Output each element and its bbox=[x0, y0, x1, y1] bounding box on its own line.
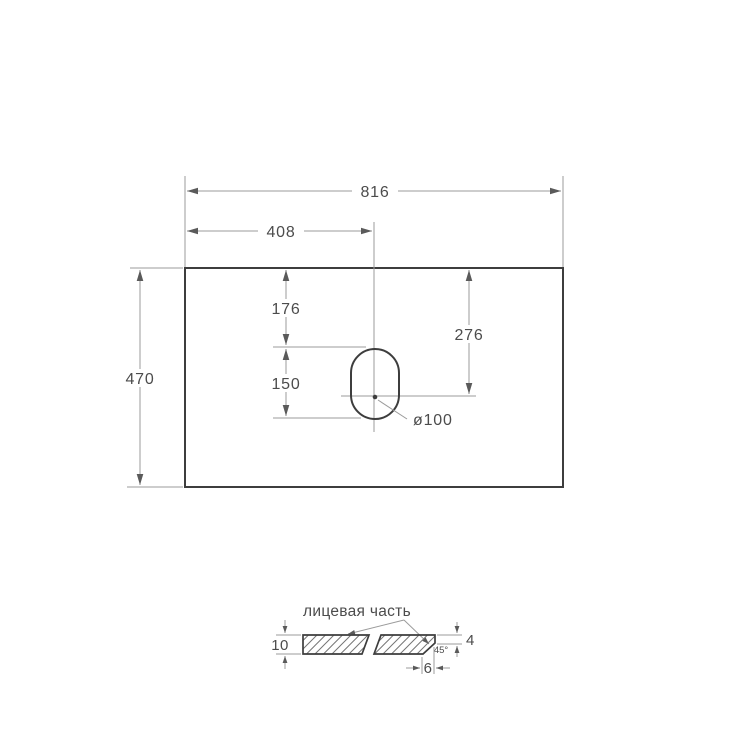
dim-276-label: 276 bbox=[454, 327, 483, 344]
section-slab-right bbox=[374, 635, 435, 654]
technical-drawing: 816 408 470 176 150 276 ø100 лицевая час… bbox=[0, 0, 750, 750]
dim-408-label: 408 bbox=[266, 224, 295, 241]
dim-10-label: 10 bbox=[271, 637, 289, 654]
top-view-labels: 816 408 470 176 150 276 ø100 bbox=[116, 182, 493, 429]
chamfer-angle-label: 45° bbox=[434, 645, 449, 656]
drawing-page: 816 408 470 176 150 276 ø100 лицевая час… bbox=[0, 0, 750, 750]
top-view: 816 408 470 176 150 276 ø100 bbox=[116, 176, 563, 487]
face-side-label: лицевая часть bbox=[303, 603, 411, 620]
dim-816-label: 816 bbox=[360, 184, 389, 201]
dim-150-label: 150 bbox=[271, 376, 300, 393]
extension-lines bbox=[127, 176, 563, 487]
dimension-lines bbox=[140, 191, 561, 485]
dim-6-label: 6 bbox=[424, 660, 433, 677]
dim-176-label: 176 bbox=[271, 301, 300, 318]
dim-470-label: 470 bbox=[125, 371, 154, 388]
section-slab-left bbox=[303, 635, 369, 654]
hole-center-mark bbox=[373, 395, 378, 400]
hole-diameter-leader bbox=[378, 400, 407, 419]
hole-diameter-label: ø100 bbox=[413, 412, 453, 429]
section-view: лицевая часть 10 4 bbox=[271, 603, 475, 677]
dim-4-label: 4 bbox=[466, 632, 475, 649]
